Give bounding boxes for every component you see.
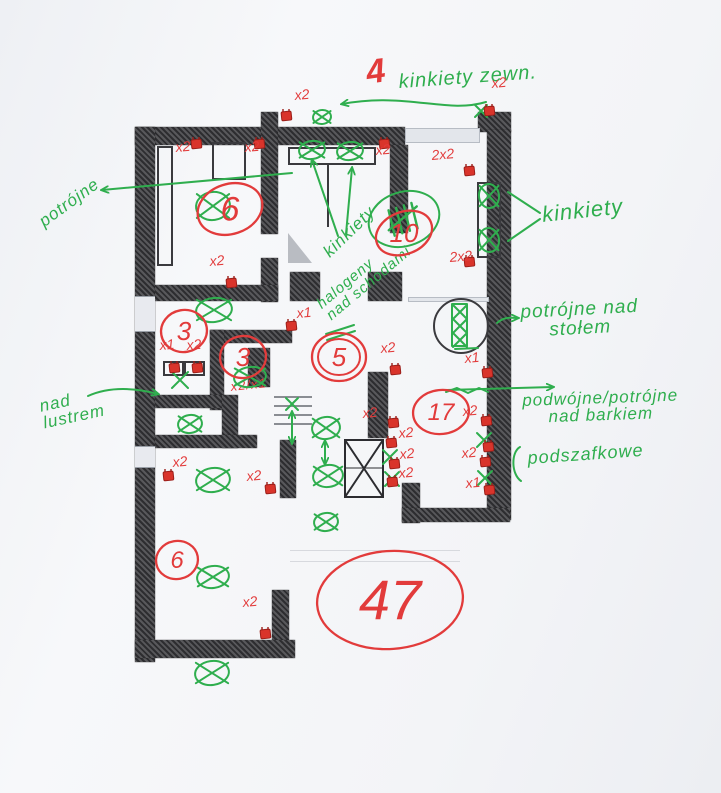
count-value: 5: [332, 342, 347, 372]
green-x-mark: [172, 372, 188, 388]
count-circle: 6: [191, 175, 269, 243]
socket-marker: x2: [245, 467, 276, 494]
socket-count-label: x2: [174, 138, 191, 155]
socket-marker: x2: [241, 593, 271, 639]
count-value: 47: [359, 568, 423, 631]
socket-count-label: x1: [463, 349, 480, 366]
socket-marker: x2: [163, 453, 188, 481]
count-circle: 5: [312, 333, 366, 381]
count-circle: 47: [314, 546, 466, 654]
green-arrow: [88, 389, 158, 396]
floor-plan-scan: 61033517647x2x2x2x2x22x22x2x2x1x1x2x2x1x…: [0, 0, 721, 793]
socket-marker: 2x2: [430, 145, 475, 176]
socket-count-label: x2: [361, 404, 378, 421]
green-arrow: [508, 219, 540, 241]
ceiling-lamp-symbol: [313, 511, 339, 532]
green-arrow: [513, 447, 521, 481]
socket-marker: x1: [463, 349, 493, 378]
socket-marker: x2: [174, 137, 202, 155]
green-arrow: [342, 100, 486, 105]
socket-count-label: x2: [245, 467, 262, 484]
socket-count-label: x1: [158, 336, 175, 353]
count-value: 17: [428, 399, 456, 426]
socket-count-label: x1: [464, 474, 481, 491]
count-circle: 6: [153, 538, 201, 583]
socket-marker: [483, 440, 494, 452]
socket-marker: x2: [281, 86, 310, 121]
socket-count-label: x2: [397, 424, 414, 441]
socket-count-label: x2: [490, 74, 507, 91]
green-arrow: [346, 168, 352, 234]
ceiling-lamp-symbol: [196, 564, 231, 590]
socket-count-label: x2: [208, 252, 225, 269]
green-x-mark: [453, 319, 467, 333]
socket-count-label: 2x2: [448, 247, 473, 265]
socket-marker: x2: [208, 252, 237, 288]
socket-count-label: x2: [461, 402, 478, 419]
green-x-mark: [453, 333, 467, 347]
socket-marker: x2: [379, 339, 401, 375]
green-arrow: [102, 173, 292, 190]
socket-count-label: x2: [185, 336, 202, 353]
ceiling-lamp-symbol: [177, 413, 203, 434]
socket-count-label: x1: [295, 304, 312, 321]
ceiling-lamp-symbol: [193, 659, 230, 687]
socket-marker: x2: [484, 74, 507, 116]
ceiling-lamp-symbol: [194, 466, 231, 494]
socket-marker: x2: [361, 404, 399, 428]
socket-marker: x2: [185, 336, 203, 373]
count-value: 3: [236, 342, 251, 372]
ceiling-lamp-symbol: [477, 227, 500, 254]
green-arrow: [497, 318, 518, 323]
socket-count-label: x2: [460, 444, 477, 461]
socket-count-label: x2: [243, 138, 260, 155]
ceiling-lamp-symbol: [312, 463, 345, 489]
ceiling-lamp-symbol: [311, 415, 342, 441]
ceiling-lamp-symbol: [336, 140, 364, 161]
green-arrow: [508, 192, 540, 213]
socket-count-label: x2: [374, 141, 391, 158]
socket-count-label: x2: [397, 464, 414, 481]
ceiling-lamp-symbol: [298, 139, 326, 160]
socket-marker: x2: [374, 137, 391, 158]
ceiling-lamp-symbol: [195, 296, 234, 325]
green-arrow: [312, 160, 338, 236]
count-value: 6: [170, 547, 184, 574]
count-circle: 10: [369, 203, 439, 264]
socket-count-label: 2x2: [430, 145, 455, 163]
green-arrow: [447, 387, 553, 390]
ceiling-lamp-symbol: [477, 183, 500, 210]
annotations-layer: 61033517647x2x2x2x2x22x22x2x2x1x1x2x2x1x…: [0, 0, 721, 793]
socket-count-label: x2: [293, 86, 310, 103]
socket-marker: x1: [286, 304, 312, 331]
green-x-mark: [286, 398, 298, 410]
socket-marker: x2: [243, 137, 265, 155]
count-value: 10: [390, 218, 419, 248]
ceiling-lamp-symbol: [312, 109, 332, 125]
socket-count-label: x2: [379, 339, 396, 356]
socket-count-label: x2: [241, 593, 258, 610]
socket-count-label: x2: [171, 453, 188, 470]
count-value: 6: [221, 191, 240, 229]
socket-count-label: x2: [398, 445, 415, 462]
socket-marker: 2x2: [448, 247, 475, 267]
green-x-mark: [453, 305, 467, 319]
